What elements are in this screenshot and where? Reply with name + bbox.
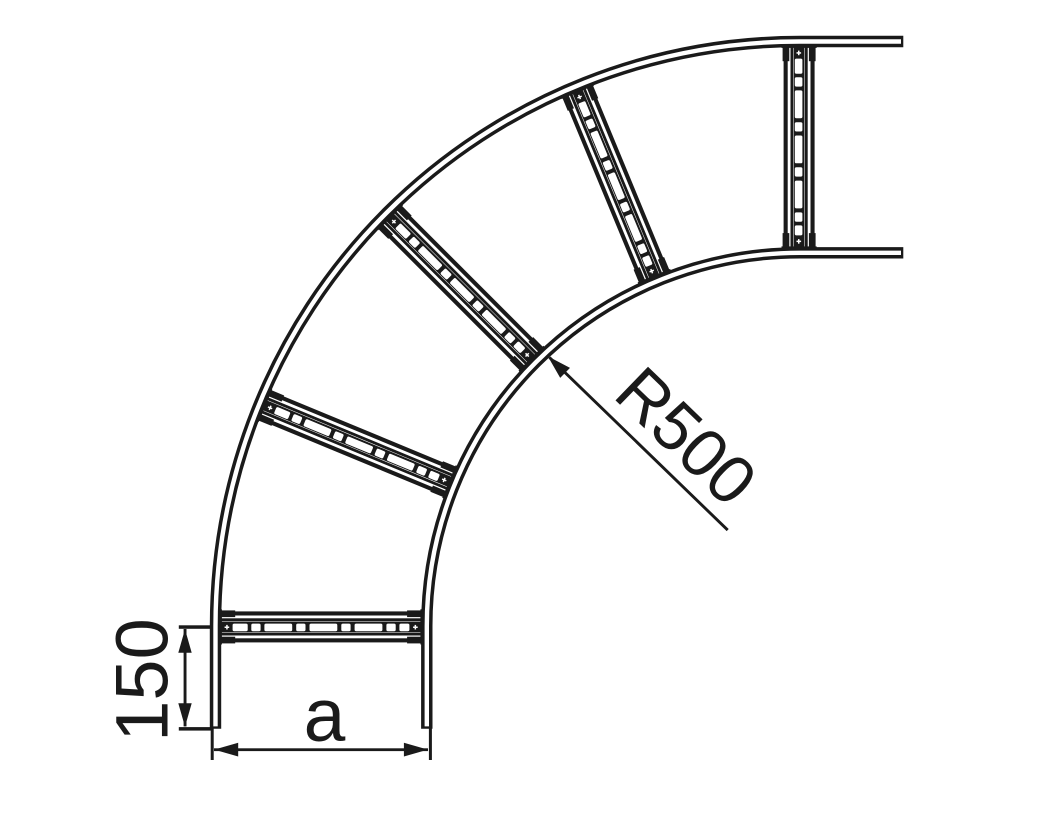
- svg-text:a: a: [304, 673, 346, 757]
- svg-text:150: 150: [101, 618, 184, 741]
